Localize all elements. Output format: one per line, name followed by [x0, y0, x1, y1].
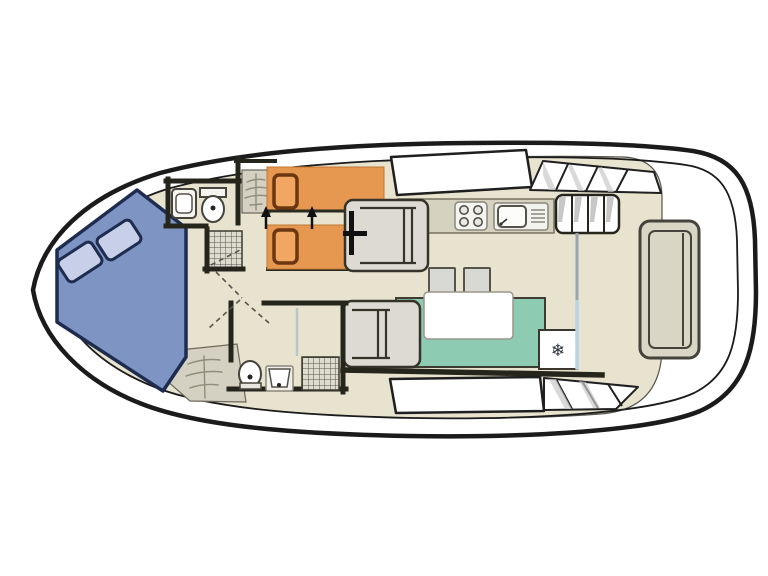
- washbasin-drain: [277, 383, 281, 387]
- aft-deck: [640, 221, 699, 358]
- washbasin-bowl: [176, 194, 192, 213]
- toilet-drain: [211, 206, 216, 211]
- fore-shower: [206, 231, 242, 269]
- toilet-base: [240, 383, 261, 389]
- saloon-table: [424, 292, 513, 339]
- snowflake-icon: ❄: [551, 341, 565, 361]
- twin-bed-top-pillow: [274, 175, 297, 208]
- sink-drain: [499, 222, 502, 225]
- stool: [429, 268, 455, 294]
- aft-shower: [302, 357, 339, 390]
- sliding-door: [556, 195, 619, 233]
- helm-station: [343, 200, 428, 271]
- hob-unit: [455, 202, 487, 230]
- toilet-drain: [248, 375, 253, 380]
- stool: [464, 268, 490, 294]
- floorplan-canvas: ❄: [0, 0, 768, 576]
- window-band-top: [391, 150, 532, 195]
- twin-bed-bottom-pillow: [274, 230, 297, 263]
- boat-floorplan: ❄: [0, 0, 768, 576]
- window-band-bottom: [390, 377, 544, 413]
